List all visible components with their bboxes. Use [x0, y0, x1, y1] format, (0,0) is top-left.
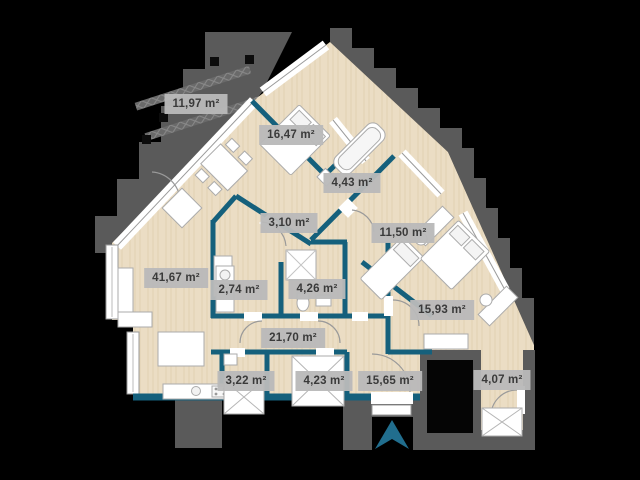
room-area-label-terrace: 11,97 m² [165, 94, 228, 114]
room-area-label-bedroom-se: 15,93 m² [410, 300, 474, 320]
room-area-label-bathroom-mid: 4,26 m² [288, 279, 345, 299]
room-area-label-closet: 2,74 m² [210, 280, 267, 300]
floor-plan-drawing [0, 0, 640, 480]
room-area-label-wc: 3,22 m² [217, 371, 274, 391]
room-area-label-lobby: 4,07 m² [473, 370, 530, 390]
room-area-label-hall-small: 3,10 m² [260, 213, 317, 233]
room-area-label-bathroom-top: 4,43 m² [323, 173, 380, 193]
room-area-label-living-room: 41,67 m² [144, 268, 208, 288]
floor-plan-canvas: 11,97 m² 16,47 m² 4,43 m² 3,10 m² 11,50 … [0, 0, 640, 480]
room-area-label-hallway: 21,70 m² [261, 328, 325, 348]
room-area-label-bedroom-right: 11,50 m² [372, 223, 435, 243]
room-area-label-storage: 4,23 m² [295, 371, 352, 391]
room-area-label-entry-hall: 15,65 m² [358, 371, 422, 391]
entrance [372, 405, 413, 452]
shaft [427, 360, 473, 433]
room-area-label-bedroom-top: 16,47 m² [259, 125, 323, 145]
